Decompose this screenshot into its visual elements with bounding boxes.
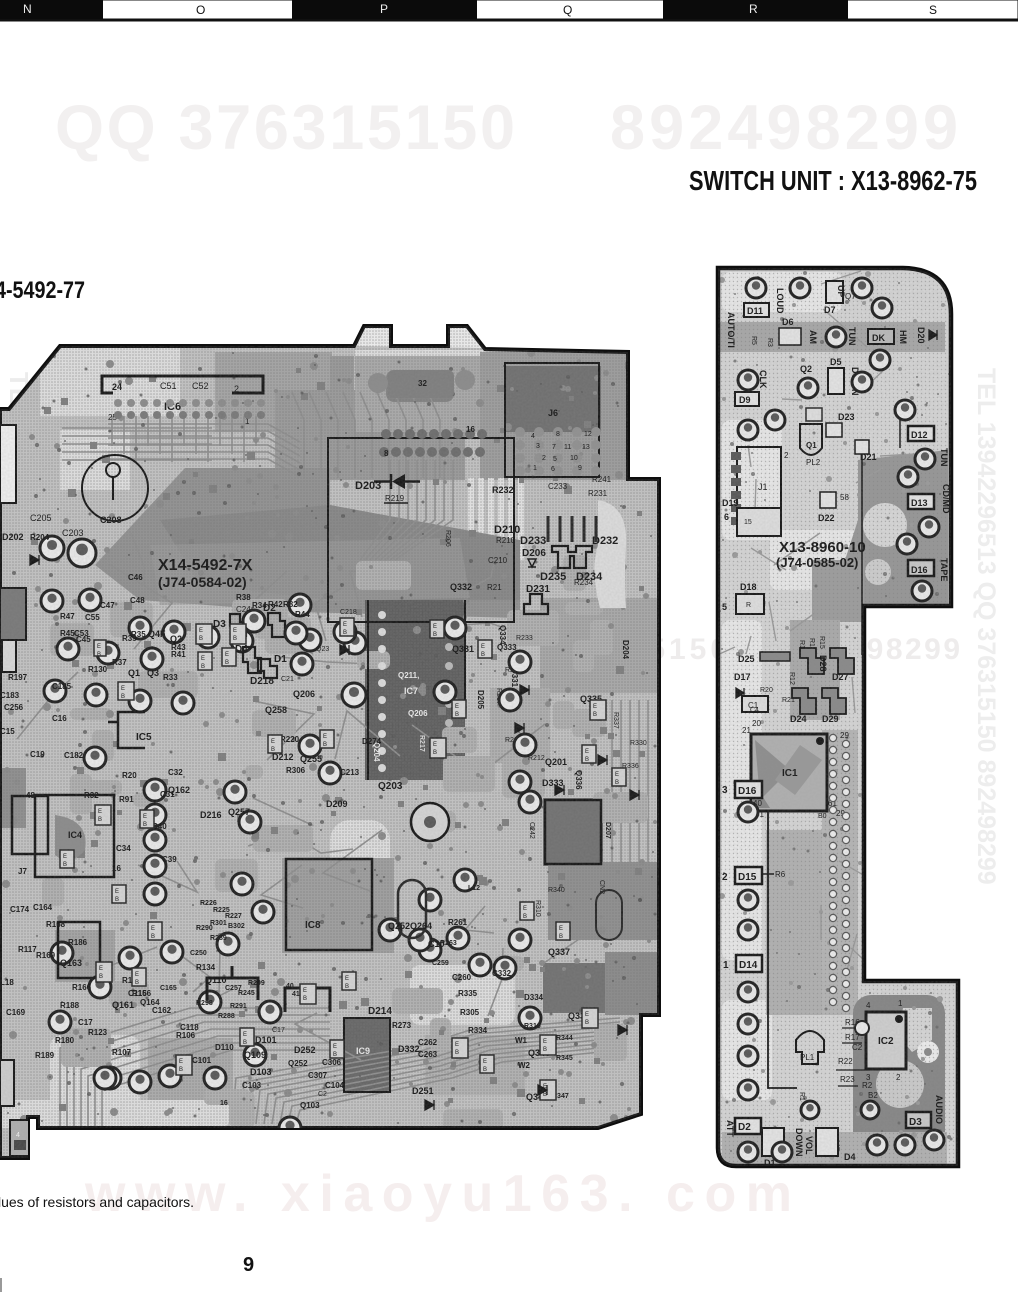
svg-text:Q: Q bbox=[563, 3, 572, 17]
svg-text:892498299: 892498299 bbox=[610, 93, 958, 163]
svg-text:QQ 376315150: QQ 376315150 bbox=[55, 93, 515, 163]
svg-text:9: 9 bbox=[243, 1254, 254, 1276]
svg-text:S: S bbox=[929, 3, 937, 17]
svg-text:lues of resistors and capacito: lues of resistors and capacitors. bbox=[0, 1194, 194, 1210]
svg-text:R: R bbox=[749, 2, 758, 16]
svg-text:P: P bbox=[380, 2, 388, 16]
svg-text:TEL 13942296513 QQ 376315150: TEL 13942296513 QQ 376315150 892498299 bbox=[972, 368, 1000, 885]
svg-text:4-5492-77: 4-5492-77 bbox=[0, 277, 85, 304]
svg-text:N: N bbox=[23, 2, 32, 16]
svg-text:SWITCH UNIT : X13-8962-75: SWITCH UNIT : X13-8962-75 bbox=[689, 165, 977, 196]
svg-text:O: O bbox=[196, 3, 205, 17]
